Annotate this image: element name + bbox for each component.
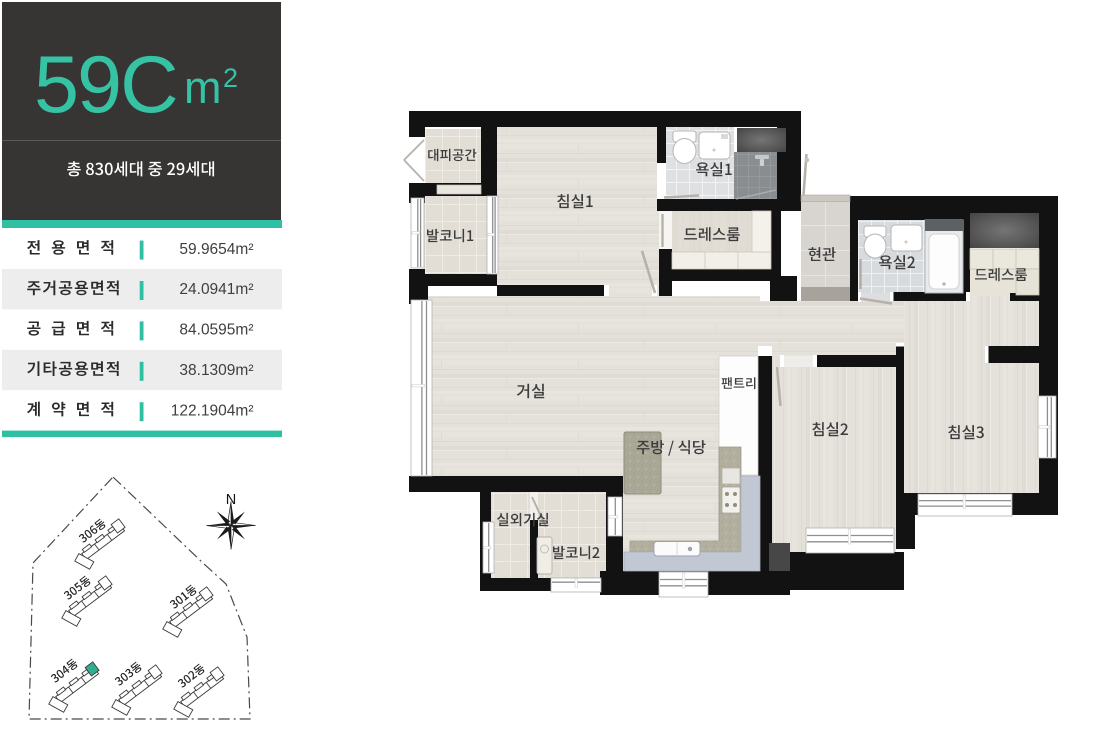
- svg-text:2: 2: [223, 63, 238, 93]
- svg-text:84.0595m²: 84.0595m²: [179, 322, 253, 339]
- svg-text:122.1904m²: 122.1904m²: [171, 402, 254, 419]
- svg-text:24.0941m²: 24.0941m²: [179, 281, 253, 298]
- svg-text:m: m: [184, 62, 222, 113]
- svg-text:38.1309m²: 38.1309m²: [179, 362, 253, 379]
- svg-text:59.9654m²: 59.9654m²: [179, 241, 253, 258]
- svg-text:N: N: [226, 492, 236, 508]
- svg-text:59C: 59C: [34, 40, 177, 130]
